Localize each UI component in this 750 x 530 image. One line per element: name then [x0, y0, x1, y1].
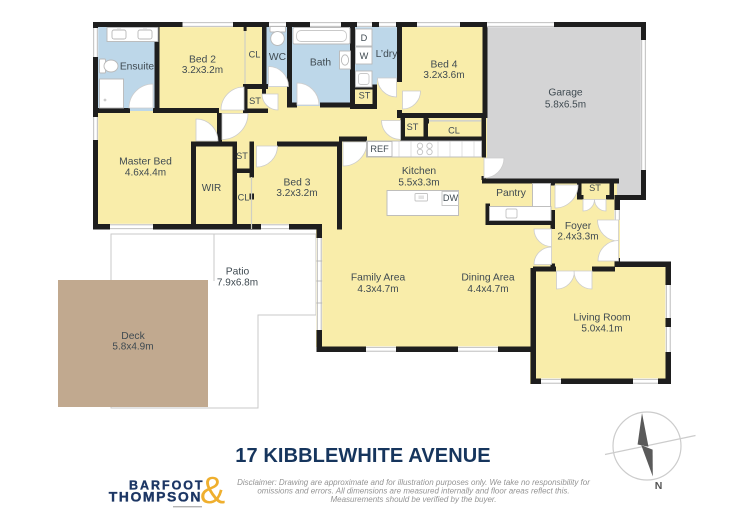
svg-text:Garage: Garage	[548, 88, 583, 99]
svg-text:&: &	[200, 470, 225, 512]
svg-text:ST: ST	[249, 96, 261, 106]
svg-text:Measurements should be verifie: Measurements should be verified by the b…	[330, 495, 496, 504]
svg-text:ST: ST	[407, 122, 419, 132]
svg-text:W: W	[360, 51, 369, 61]
svg-text:Foyer: Foyer	[565, 221, 592, 232]
svg-text:Ensuite: Ensuite	[120, 62, 155, 73]
svg-text:4.3x4.7m: 4.3x4.7m	[357, 284, 398, 295]
svg-text:ST: ST	[589, 183, 601, 193]
svg-text:CL: CL	[249, 50, 261, 60]
svg-text:Family Area: Family Area	[351, 273, 406, 284]
svg-text:CL: CL	[448, 126, 460, 136]
svg-text:THOMPSON: THOMPSON	[109, 489, 202, 505]
svg-text:Bath: Bath	[310, 58, 331, 69]
svg-text:L’dry: L’dry	[376, 49, 399, 60]
svg-text:Deck: Deck	[121, 331, 145, 342]
svg-text:3.2x3.6m: 3.2x3.6m	[423, 70, 464, 81]
svg-text:7.9x6.8m: 7.9x6.8m	[217, 278, 258, 289]
svg-text:WC: WC	[269, 52, 287, 63]
svg-text:Kitchen: Kitchen	[402, 166, 437, 177]
svg-text:ST: ST	[359, 91, 371, 101]
svg-text:DW: DW	[443, 193, 459, 203]
svg-text:5.8x6.5m: 5.8x6.5m	[545, 99, 586, 110]
svg-text:Bed 2: Bed 2	[189, 55, 216, 66]
svg-text:Pantry: Pantry	[496, 188, 527, 199]
svg-text:5.0x4.1m: 5.0x4.1m	[581, 324, 622, 335]
svg-text:Bed 4: Bed 4	[431, 60, 458, 71]
svg-text:2.4x3.3m: 2.4x3.3m	[557, 232, 598, 243]
svg-text:N: N	[655, 480, 663, 492]
svg-text:ST: ST	[236, 151, 248, 161]
svg-text:3.2x3.2m: 3.2x3.2m	[276, 188, 317, 199]
svg-text:WIR: WIR	[202, 183, 221, 194]
svg-text:Patio: Patio	[226, 267, 250, 278]
svg-text:5.5x3.3m: 5.5x3.3m	[398, 178, 439, 189]
svg-text:3.2x3.2m: 3.2x3.2m	[182, 65, 223, 76]
svg-text:Dining Area: Dining Area	[461, 273, 515, 284]
svg-text:5.8x4.9m: 5.8x4.9m	[112, 342, 153, 353]
svg-text:D: D	[361, 33, 368, 43]
svg-text:4.4x4.7m: 4.4x4.7m	[467, 284, 508, 295]
svg-text:Bed 3: Bed 3	[284, 178, 311, 189]
svg-text:4.6x4.4m: 4.6x4.4m	[125, 168, 166, 179]
svg-text:Master Bed: Master Bed	[119, 157, 172, 168]
svg-text:Living Room: Living Room	[573, 313, 630, 324]
svg-text:REF: REF	[370, 144, 389, 154]
svg-text:17 KIBBLEWHITE AVENUE: 17 KIBBLEWHITE AVENUE	[235, 445, 490, 467]
svg-text:CL: CL	[238, 193, 250, 203]
